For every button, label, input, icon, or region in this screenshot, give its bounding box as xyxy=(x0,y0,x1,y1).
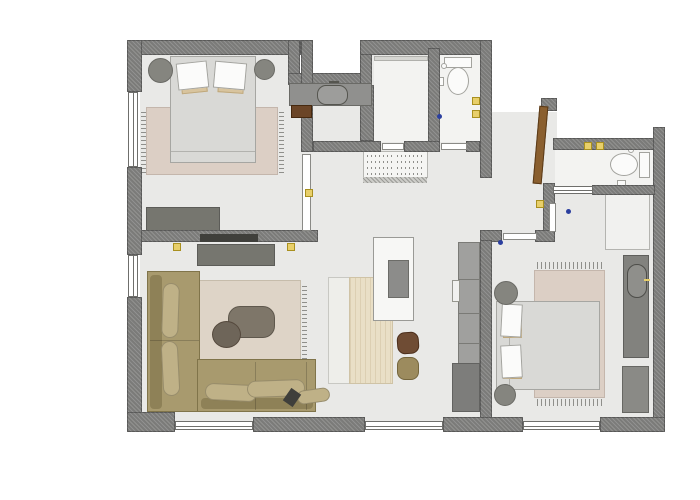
wall-bottom-2 xyxy=(443,417,523,432)
window-bedroom2-bottom xyxy=(523,421,600,430)
socket xyxy=(472,97,480,105)
cabinet-seam xyxy=(459,343,479,344)
kitchen-cabinet-handle xyxy=(452,280,460,302)
bedroom2-pillow-bottom xyxy=(500,344,523,378)
wall-wc-right xyxy=(480,40,492,178)
sofa-cushion-2 xyxy=(161,341,181,397)
socket xyxy=(305,189,313,197)
hanger-rail xyxy=(397,173,422,175)
wall-bottom-3 xyxy=(600,417,665,432)
marker-dot xyxy=(498,240,503,245)
window-bedroom1-left xyxy=(128,92,138,167)
wardrobe-sliding-track xyxy=(363,177,427,183)
hall-stool xyxy=(291,105,312,118)
marker-dot xyxy=(566,209,571,214)
hanger-rail xyxy=(367,161,392,163)
bedroom1-rug-fringe-right xyxy=(279,109,284,173)
socket xyxy=(173,243,181,251)
hanger-rail xyxy=(367,155,392,157)
storage-shelf xyxy=(374,56,428,61)
socket xyxy=(536,200,544,208)
outside-notch-topright xyxy=(557,38,665,138)
bedroom2-rug-fringe-bottom xyxy=(537,399,602,406)
wall-left-1 xyxy=(127,40,142,92)
bedroom2-rug-fringe-top xyxy=(537,262,602,269)
tv-sideboard xyxy=(197,244,275,266)
floor-storage xyxy=(374,58,428,142)
sofa-cushion-1 xyxy=(161,283,180,339)
bedroom2-pillow-top xyxy=(500,303,523,337)
socket xyxy=(287,243,295,251)
vanity-tap xyxy=(644,279,650,281)
floor-plan xyxy=(0,0,700,500)
wall-right-outer xyxy=(653,127,665,432)
bathroom-toilet-tank xyxy=(639,152,650,178)
bed-foot-line xyxy=(171,151,255,152)
hanger-rail xyxy=(397,161,422,163)
wall-tv xyxy=(200,234,258,242)
pocket-door-leaf xyxy=(549,203,556,232)
washbasin-tap xyxy=(329,81,339,83)
sofa-seam-3 xyxy=(150,340,199,341)
vanity-basin xyxy=(627,264,647,298)
window-living-bottom xyxy=(175,421,253,430)
bedroom1-pillow-right xyxy=(213,61,247,91)
kitchen-base-cabinet xyxy=(452,363,480,412)
marker-dot xyxy=(437,114,442,119)
dining-chair-brown xyxy=(396,331,419,354)
wc-flush-button xyxy=(441,63,447,69)
storage-door-leaf xyxy=(382,143,404,150)
island-sink xyxy=(388,260,409,298)
bathroom-sliding-door xyxy=(553,186,593,194)
wall-hall-band-2 xyxy=(404,141,440,152)
wall-bathroom-bottom xyxy=(592,185,655,195)
dining-chair-olive xyxy=(397,357,419,380)
hall-washbasin xyxy=(317,85,348,105)
wc-door-leaf xyxy=(441,143,467,150)
bedroom2-sliding-door-leaf xyxy=(503,233,537,240)
bathroom-toilet-bowl xyxy=(610,153,638,176)
living-rug-fringe xyxy=(302,283,307,367)
wall-left-2 xyxy=(127,167,142,255)
pouf xyxy=(212,321,241,348)
wall-hall-band-1 xyxy=(313,141,381,152)
wall-middle-vertical xyxy=(480,240,492,432)
socket xyxy=(584,142,592,150)
socket xyxy=(596,142,604,150)
bedroom2-wardrobe xyxy=(622,366,649,413)
hanger-rail xyxy=(367,173,392,175)
bedroom1-pillow-left xyxy=(176,60,210,90)
window-dining-bottom xyxy=(365,421,443,430)
wc-toilet-bowl xyxy=(447,67,469,95)
wall-bottom-1 xyxy=(253,417,365,432)
dining-bench xyxy=(328,277,350,384)
bedroom1-rug-fringe-left xyxy=(141,109,146,173)
hanger-rail xyxy=(397,155,422,157)
wall-top-right xyxy=(360,40,492,55)
wall-top-left xyxy=(127,40,301,55)
hanger-rail xyxy=(367,167,392,169)
bedroom2-nightstand-top xyxy=(494,281,518,305)
cabinet-seam xyxy=(459,313,479,314)
window-living-left xyxy=(128,255,138,297)
hanger-rail xyxy=(397,167,422,169)
wall-bathroom-top xyxy=(553,138,665,150)
bedroom2-nightstand-bottom xyxy=(494,384,516,406)
bedroom2-corner-closet xyxy=(605,192,650,250)
wall-wc-left xyxy=(428,48,440,152)
bedroom1-nightstand-left xyxy=(148,58,173,83)
bedroom1-nightstand-right xyxy=(254,59,275,80)
cabinet-seam xyxy=(459,279,479,280)
socket xyxy=(472,110,480,118)
wall-hall-band-3 xyxy=(466,141,480,152)
wall-corner-bottom-left xyxy=(127,412,175,432)
sofa-back-left xyxy=(150,275,162,409)
